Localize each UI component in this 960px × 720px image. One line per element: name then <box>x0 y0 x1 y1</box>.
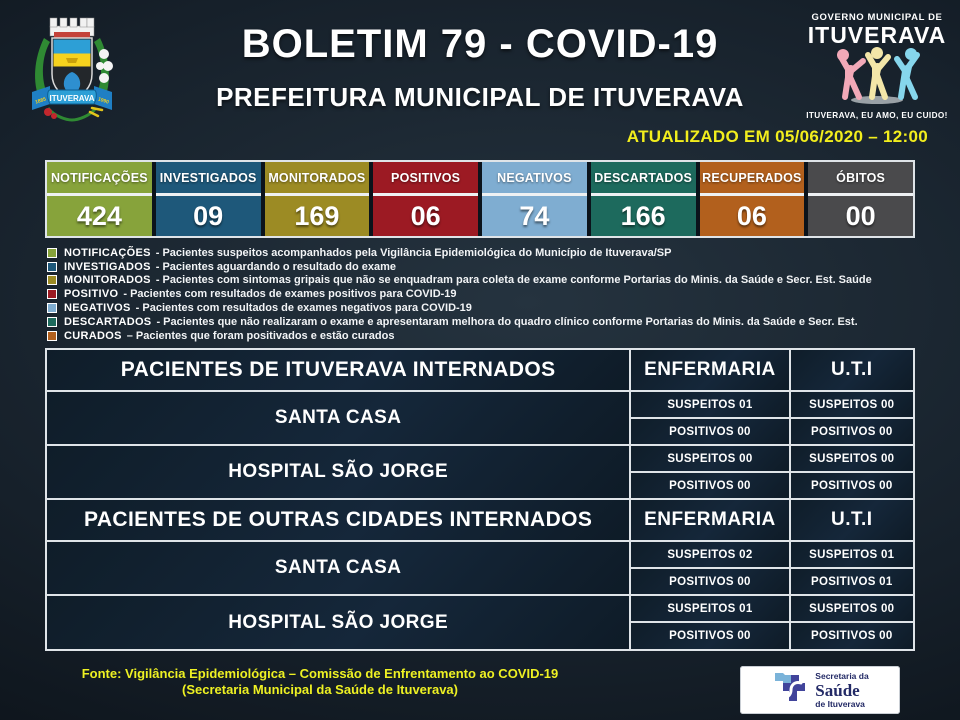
secretaria-saude-logo: Secretaria da Saúde de Ituverava <box>740 666 900 714</box>
stat-obitos: ÓBITOS 00 <box>808 162 913 236</box>
color-swatch-icon <box>47 275 57 285</box>
stat-label: RECUPERADOS <box>700 162 805 196</box>
stat-label: MONITORADOS <box>265 162 370 196</box>
hospital-name: SANTA CASA <box>47 542 629 594</box>
stat-label: NEGATIVOS <box>482 162 587 196</box>
enfermaria-suspeitos: SUSPEITOS 00 <box>631 446 788 471</box>
uti-suspeitos: SUSPEITOS 00 <box>791 446 913 471</box>
covid-stats-table: NOTIFICAÇÕES 424 INVESTIGADOS 09 MONITOR… <box>45 160 915 238</box>
stat-label: DESCARTADOS <box>591 162 696 196</box>
legend-desc: - Pacientes aguardando o resultado do ex… <box>156 261 396 273</box>
stat-notificacoes: NOTIFICAÇÕES 424 <box>47 162 152 236</box>
uti-positivos: POSITIVOS 00 <box>791 419 913 444</box>
col-header-uti: U.T.I <box>791 500 913 540</box>
enfermaria-positivos: POSITIVOS 00 <box>631 623 788 649</box>
stat-value: 74 <box>482 196 587 236</box>
hospital-name: HOSPITAL SÃO JORGE <box>47 596 629 649</box>
gov-municipal-logo: GOVERNO MUNICIPAL DE ITUVERAVA ITUVER <box>802 12 952 120</box>
saude-logo-line3: de Ituverava <box>815 700 868 709</box>
legend-term: MONITORADOS <box>64 274 151 286</box>
internados-table: PACIENTES DE ITUVERAVA INTERNADOS ENFERM… <box>45 348 915 651</box>
legend-term: INVESTIGADOS <box>64 261 151 273</box>
color-swatch-icon <box>47 303 57 313</box>
legend-term: NEGATIVOS <box>64 302 131 314</box>
enfermaria-suspeitos: SUSPEITOS 01 <box>631 596 788 621</box>
saude-logo-line1: Secretaria da <box>815 672 868 681</box>
color-swatch-icon <box>47 317 57 327</box>
stat-value: 09 <box>156 196 261 236</box>
legend-term: DESCARTADOS <box>64 316 151 328</box>
stat-investigados: INVESTIGADOS 09 <box>156 162 261 236</box>
legend-term: CURADOS <box>64 330 122 342</box>
hospital-name: SANTA CASA <box>47 392 629 444</box>
source-note: Fonte: Vigilância Epidemiológica – Comis… <box>30 666 610 698</box>
enfermaria-positivos: POSITIVOS 00 <box>631 569 788 594</box>
saude-cross-icon <box>771 671 809 709</box>
stat-value: 06 <box>373 196 478 236</box>
stat-label: POSITIVOS <box>373 162 478 196</box>
uti-positivos: POSITIVOS 00 <box>791 473 913 498</box>
stat-monitorados: MONITORADOS 169 <box>265 162 370 236</box>
legend-item-investigados: INVESTIGADOS - Pacientes aguardando o re… <box>47 260 927 274</box>
legend-item-curados: CURADOS – Pacientes que foram positivado… <box>47 329 927 343</box>
uti-suspeitos: SUSPEITOS 00 <box>791 392 913 417</box>
stat-label: ÓBITOS <box>808 162 913 196</box>
uti-positivos: POSITIVOS 00 <box>791 623 913 649</box>
saude-logo-line2: Saúde <box>815 682 868 699</box>
stat-value: 169 <box>265 196 370 236</box>
legend-term: POSITIVO <box>64 288 118 300</box>
source-line2: (Secretaria Municipal da Saúde de Ituver… <box>30 682 610 698</box>
enfermaria-suspeitos: SUSPEITOS 02 <box>631 542 788 567</box>
section-title-outras-cidades: PACIENTES DE OUTRAS CIDADES INTERNADOS <box>47 500 629 540</box>
legend-item-monitorados: MONITORADOS - Pacientes com sintomas gri… <box>47 274 927 288</box>
stat-label: INVESTIGADOS <box>156 162 261 196</box>
stat-negativos: NEGATIVOS 74 <box>482 162 587 236</box>
legend-item-negativos: NEGATIVOS - Pacientes com resultados de … <box>47 301 927 315</box>
legend-desc: - Pacientes com sintomas gripais que não… <box>156 274 872 286</box>
uti-suspeitos: SUSPEITOS 01 <box>791 542 913 567</box>
uti-suspeitos: SUSPEITOS 00 <box>791 596 913 621</box>
color-swatch-icon <box>47 289 57 299</box>
color-swatch-icon <box>47 331 57 341</box>
col-header-uti: U.T.I <box>791 350 913 390</box>
enfermaria-positivos: POSITIVOS 00 <box>631 419 788 444</box>
legend-desc: - Pacientes suspeitos acompanhados pela … <box>156 247 672 259</box>
enfermaria-suspeitos: SUSPEITOS 01 <box>631 392 788 417</box>
legend-desc: - Pacientes que não realizaram o exame e… <box>156 316 857 328</box>
legend-desc: - Pacientes com resultados de exames neg… <box>136 302 472 314</box>
col-header-enfermaria: ENFERMARIA <box>631 350 788 390</box>
stat-value: 00 <box>808 196 913 236</box>
source-line1: Fonte: Vigilância Epidemiológica – Comis… <box>30 666 610 682</box>
color-swatch-icon <box>47 262 57 272</box>
col-header-enfermaria: ENFERMARIA <box>631 500 788 540</box>
updated-timestamp: ATUALIZADO EM 05/06/2020 – 12:00 <box>627 127 928 147</box>
hospital-name: HOSPITAL SÃO JORGE <box>47 446 629 498</box>
legend-item-positivo: POSITIVO - Pacientes com resultados de e… <box>47 287 927 301</box>
legend-item-notificacoes: NOTIFICAÇÕES - Pacientes suspeitos acomp… <box>47 246 927 260</box>
legend-item-descartados: DESCARTADOS - Pacientes que não realizar… <box>47 315 927 329</box>
stat-value: 166 <box>591 196 696 236</box>
legend-term: NOTIFICAÇÕES <box>64 247 151 259</box>
legend: NOTIFICAÇÕES - Pacientes suspeitos acomp… <box>47 246 927 343</box>
dancing-figures-icon <box>819 47 935 105</box>
stat-recuperados: RECUPERADOS 06 <box>700 162 805 236</box>
legend-desc: – Pacientes que foram positivados e estã… <box>127 330 395 342</box>
stat-descartados: DESCARTADOS 166 <box>591 162 696 236</box>
stat-label: NOTIFICAÇÕES <box>47 162 152 196</box>
gov-logo-line2: ITUVERAVA <box>802 23 952 47</box>
stat-value: 424 <box>47 196 152 236</box>
stat-positivos: POSITIVOS 06 <box>373 162 478 236</box>
uti-positivos: POSITIVOS 01 <box>791 569 913 594</box>
enfermaria-positivos: POSITIVOS 00 <box>631 473 788 498</box>
section-title-ituverava: PACIENTES DE ITUVERAVA INTERNADOS <box>47 350 629 390</box>
color-swatch-icon <box>47 248 57 258</box>
gov-logo-slogan: ITUVERAVA, EU AMO, EU CUIDO! <box>802 111 952 120</box>
legend-desc: - Pacientes com resultados de exames pos… <box>123 288 456 300</box>
stat-value: 06 <box>700 196 805 236</box>
